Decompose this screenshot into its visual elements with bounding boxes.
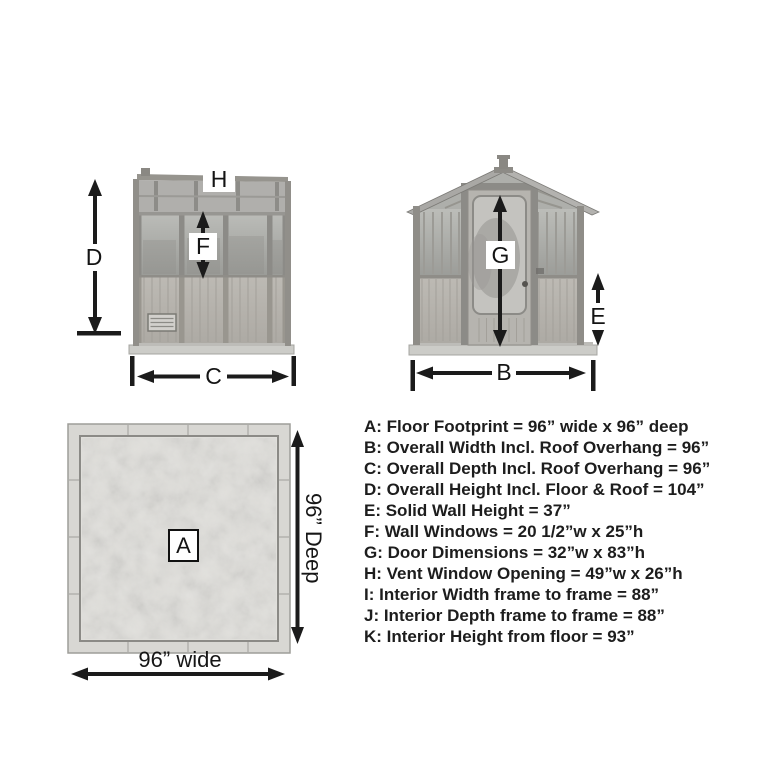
callout-overall-width: B — [492, 359, 516, 386]
callout-overall-height: D — [82, 244, 106, 271]
dimension-legend: A: Floor Footprint = 96” wide x 96” deep… — [364, 416, 756, 647]
louver-vent — [148, 314, 176, 331]
callout-vent-window: H — [203, 166, 235, 192]
legend-line-i: I: Interior Width frame to frame = 88” — [364, 584, 756, 605]
dimension-diagram-page: D H F C G E B A 96” wide 96” Deep A: Flo… — [0, 0, 758, 758]
callout-solid-wall: E — [587, 303, 609, 330]
door-handle — [522, 281, 528, 287]
legend-line-d: D: Overall Height Incl. Floor & Roof = 1… — [364, 479, 756, 500]
legend-line-e: E: Solid Wall Height = 37” — [364, 500, 756, 521]
legend-line-g: G: Door Dimensions = 32”w x 83”h — [364, 542, 756, 563]
legend-line-a: A: Floor Footprint = 96” wide x 96” deep — [364, 416, 756, 437]
callout-wall-window: F — [189, 233, 217, 260]
side-view-figure — [129, 168, 294, 354]
legend-line-f: F: Wall Windows = 20 1/2”w x 25”h — [364, 521, 756, 542]
legend-line-b: B: Overall Width Incl. Roof Overhang = 9… — [364, 437, 756, 458]
callout-door: G — [486, 241, 515, 269]
callout-floor-footprint: A — [168, 529, 199, 562]
legend-line-h: H: Vent Window Opening = 49”w x 26”h — [364, 563, 756, 584]
legend-line-k: K: Interior Height from floor = 93” — [364, 626, 756, 647]
floor-depth-label: 96” Deep — [302, 472, 324, 604]
legend-line-j: J: Interior Depth frame to frame = 88” — [364, 605, 756, 626]
floor-width-label: 96” wide — [110, 649, 250, 671]
callout-overall-depth: C — [200, 363, 227, 390]
legend-line-c: C: Overall Depth Incl. Roof Overhang = 9… — [364, 458, 756, 479]
